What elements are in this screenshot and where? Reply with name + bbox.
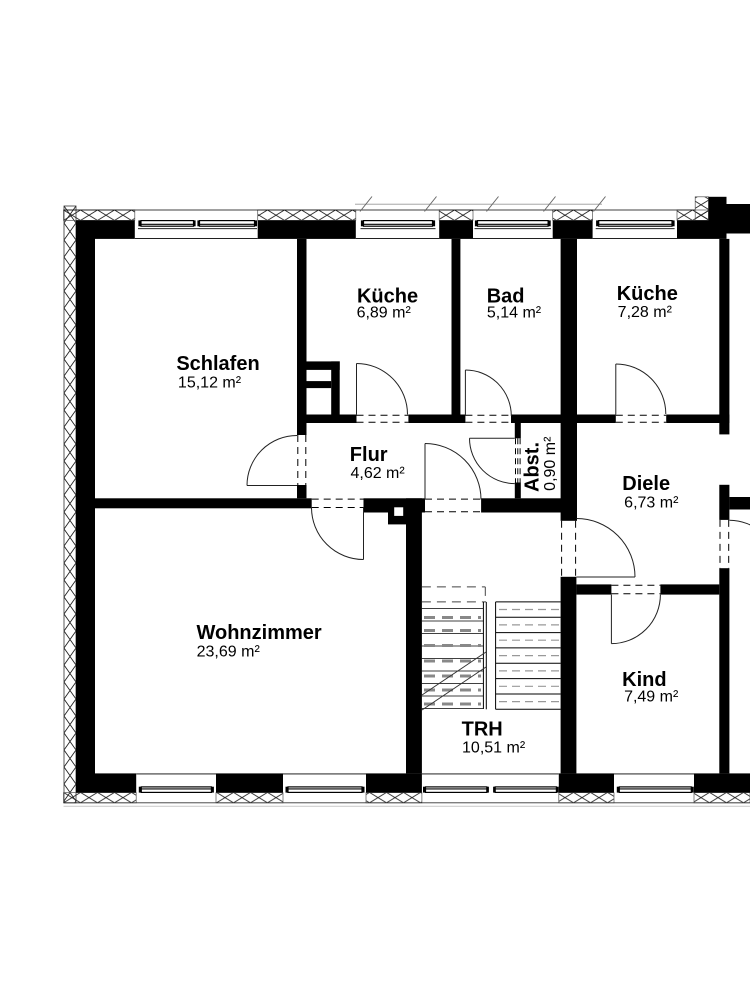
svg-text:Wohnzimmer: Wohnzimmer [196,622,321,644]
svg-text:0,90 m²: 0,90 m² [542,436,559,491]
svg-text:Abst.: Abst. [522,442,544,492]
svg-text:Flur: Flur [350,444,388,466]
svg-text:4,62 m²: 4,62 m² [350,465,405,482]
svg-text:Diele: Diele [622,473,670,495]
svg-text:Küche: Küche [617,283,678,305]
svg-text:23,69 m²: 23,69 m² [197,644,261,661]
svg-text:TRH: TRH [462,718,503,740]
svg-text:5,14 m²: 5,14 m² [487,305,542,322]
svg-text:Schlafen: Schlafen [176,353,259,375]
svg-text:7,28 m²: 7,28 m² [618,304,673,321]
svg-text:15,12 m²: 15,12 m² [178,375,242,392]
svg-text:6,73 m²: 6,73 m² [624,495,679,512]
svg-text:10,51 m²: 10,51 m² [462,740,526,757]
svg-text:7,49 m²: 7,49 m² [624,688,679,705]
svg-text:6,89 m²: 6,89 m² [357,305,412,322]
